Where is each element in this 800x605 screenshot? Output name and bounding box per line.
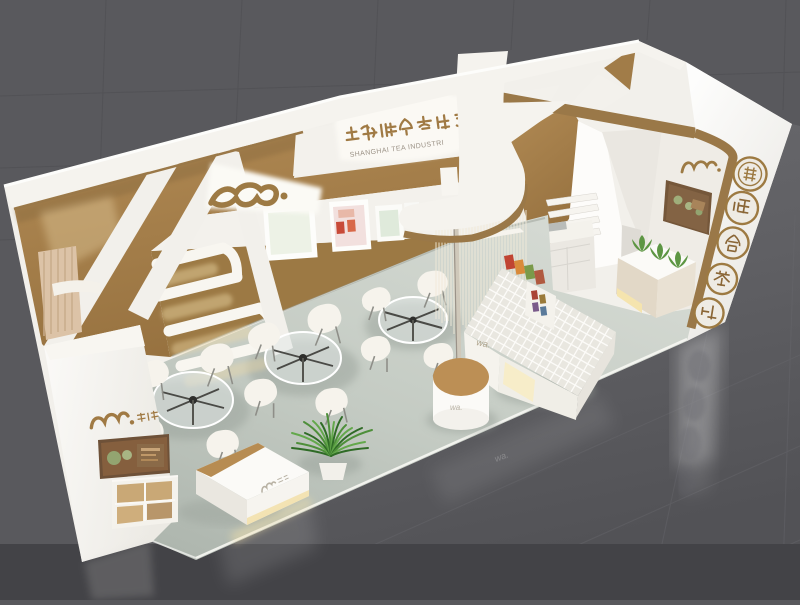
- svg-text:wa.: wa.: [450, 403, 462, 412]
